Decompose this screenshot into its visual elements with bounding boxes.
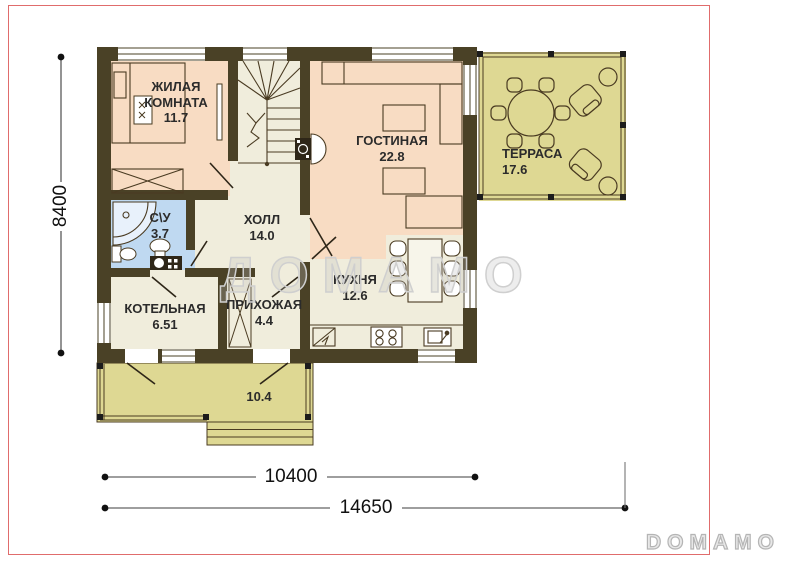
floor-plan-page: ЖИЛАЯ КОМНАТА 11.7 ГОСТИНАЯ 22.8 ТЕРРАСА… <box>0 0 800 566</box>
room-label-hall: ХОЛЛ 14.0 <box>212 212 312 243</box>
room-label-porch: 10.4 <box>219 389 299 405</box>
room-label-wc: С\У 3.7 <box>128 210 192 241</box>
room-area: 4.4 <box>202 313 326 329</box>
room-label-terrace: ТЕРРАСА 17.6 <box>502 146 592 177</box>
dimension-outer-width: 14650 <box>340 497 393 519</box>
room-label-lounge: ГОСТИНАЯ 22.8 <box>337 133 447 164</box>
dimension-inner-width: 10400 <box>265 466 318 488</box>
room-area: 14.0 <box>212 228 312 244</box>
room-area: 11.7 <box>121 110 231 126</box>
kitchen-sink-symbol <box>424 328 451 346</box>
washing-machine-symbol <box>150 256 182 270</box>
room-name: ХОЛЛ <box>212 212 312 228</box>
room-area: 22.8 <box>337 149 447 165</box>
room-label-living: ЖИЛАЯ КОМНАТА 11.7 <box>121 79 231 126</box>
stove-symbol <box>371 327 402 347</box>
room-name: С\У <box>128 210 192 226</box>
room-name: ГОСТИНАЯ <box>337 133 447 149</box>
room-area: 3.7 <box>128 226 192 242</box>
room-area: 17.6 <box>502 162 592 178</box>
watermark-center: ДОМАМО <box>220 246 537 304</box>
brand-logo: DOMAMO <box>646 531 780 555</box>
dimension-height: 8400 <box>50 185 72 227</box>
room-area: 10.4 <box>219 389 299 405</box>
room-name: ТЕРРАСА <box>502 146 592 162</box>
fireplace-symbol <box>295 134 326 164</box>
room-name: ЖИЛАЯ КОМНАТА <box>133 79 219 110</box>
